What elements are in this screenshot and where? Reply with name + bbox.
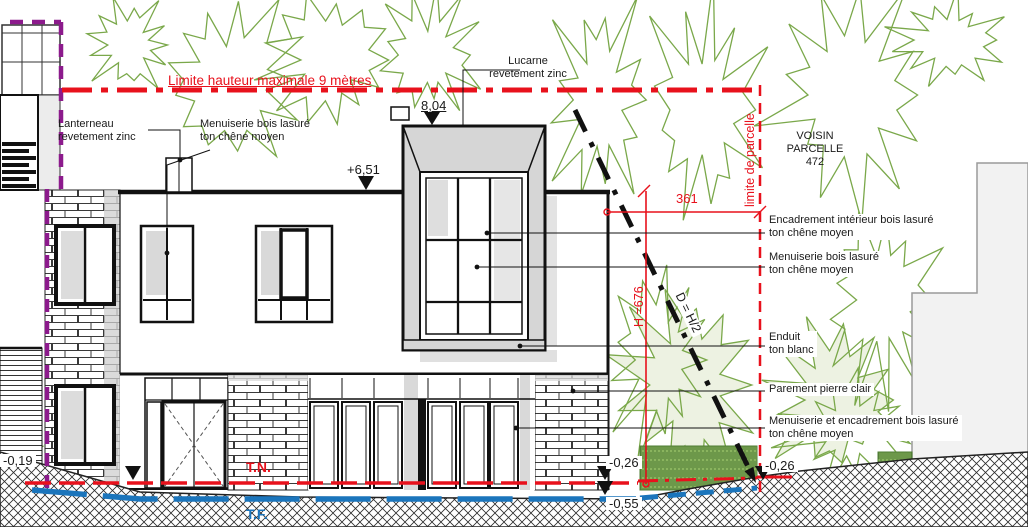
encadrement-interieur-label: Encadrement intérieur bois lasuré ton ch… bbox=[766, 214, 936, 240]
level-minus-055: -0,55 bbox=[606, 497, 642, 510]
lanterneau-label-line2: revetement zinc bbox=[58, 131, 136, 144]
level-651: +6,51 bbox=[347, 163, 380, 176]
level-804: 8,04 bbox=[421, 99, 446, 112]
lucarne-label-line2: revetement zinc bbox=[482, 68, 574, 81]
menuiserie-rdc-line2: ton chêne moyen bbox=[769, 428, 959, 441]
voisin-line1: VOISIN bbox=[770, 130, 860, 143]
menuiserie-haut-label: Menuiserie bois lasuré ton chêne moyen bbox=[200, 118, 310, 144]
menuiserie-rdc-label: Menuiserie et encadrement bois lasuré to… bbox=[766, 415, 962, 441]
enduit-label: Enduit ton blanc bbox=[766, 331, 817, 357]
tn-label: T.N. bbox=[246, 461, 271, 474]
height-limit-label: Limite hauteur maximale 9 mètres bbox=[168, 74, 371, 87]
level-minus-019: -0,19 bbox=[0, 454, 36, 467]
encadrement-line2: ton chêne moyen bbox=[769, 227, 933, 240]
menuiserie-haut-line1: Menuiserie bois lasuré bbox=[200, 118, 310, 131]
window-upper-2 bbox=[256, 226, 332, 322]
lucarne-label-line1: Lucarne bbox=[482, 55, 574, 68]
lucarne-label: Lucarne revetement zinc bbox=[482, 55, 574, 81]
voisin-line3: 472 bbox=[770, 156, 860, 169]
menuiserie-etage-label: Menuiserie bois lasuré ton chêne moyen bbox=[766, 251, 882, 277]
enduit-line2: ton blanc bbox=[769, 344, 814, 357]
enduit-line1: Enduit bbox=[769, 331, 814, 344]
lanterneau-label: Lanterneau revetement zinc bbox=[58, 118, 136, 144]
parement-label: Parement pierre clair bbox=[766, 383, 874, 396]
level-minus-026-left: -0,26 bbox=[606, 456, 642, 469]
elevation-drawing: Limite hauteur maximale 9 mètres Lucarne… bbox=[0, 0, 1028, 527]
menuiserie-etage-line1: Menuiserie bois lasuré bbox=[769, 251, 879, 264]
dormer-lucarne bbox=[403, 126, 557, 362]
entrance-door bbox=[145, 378, 228, 488]
menuiserie-rdc-line1: Menuiserie et encadrement bois lasuré bbox=[769, 415, 959, 428]
lanterneau-label-line1: Lanterneau bbox=[58, 118, 136, 131]
dimension-361-label: 361 bbox=[676, 192, 698, 205]
tf-label: T.F. bbox=[246, 508, 268, 521]
level-minus-026-right: -0,26 bbox=[762, 459, 798, 472]
house-elevation bbox=[45, 107, 610, 490]
menuiserie-etage-line2: ton chêne moyen bbox=[769, 264, 879, 277]
encadrement-line1: Encadrement intérieur bois lasuré bbox=[769, 214, 933, 227]
parcel-limit-label: limite de parcelle bbox=[744, 113, 757, 207]
menuiserie-haut-line2: ton chêne moyen bbox=[200, 131, 310, 144]
dimension-h676-label: H =676 bbox=[633, 286, 646, 327]
voisin-line2: PARCELLE bbox=[770, 143, 860, 156]
glazed-doors bbox=[308, 375, 535, 490]
voisin-parcelle-label: VOISIN PARCELLE 472 bbox=[770, 130, 860, 169]
